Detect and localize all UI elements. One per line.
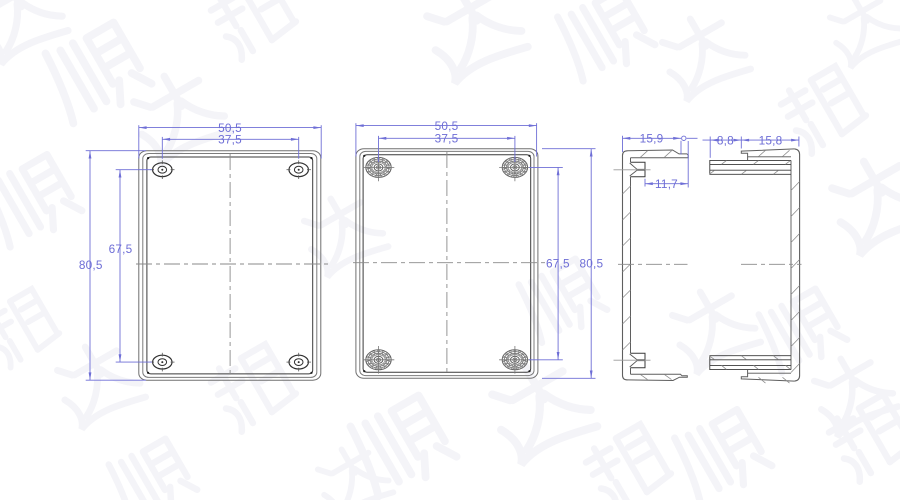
svg-text:15,8: 15,8 <box>759 133 783 147</box>
svg-text:37,5: 37,5 <box>218 133 242 147</box>
svg-text:8,8: 8,8 <box>717 133 734 147</box>
svg-text:67,5: 67,5 <box>109 242 133 256</box>
svg-text:11,7: 11,7 <box>655 177 678 191</box>
svg-text:37,5: 37,5 <box>435 132 459 146</box>
svg-text:67,5: 67,5 <box>546 256 570 270</box>
svg-text:80,5: 80,5 <box>580 256 604 270</box>
svg-text:80,5: 80,5 <box>79 258 103 272</box>
svg-text:15,9: 15,9 <box>640 132 664 146</box>
